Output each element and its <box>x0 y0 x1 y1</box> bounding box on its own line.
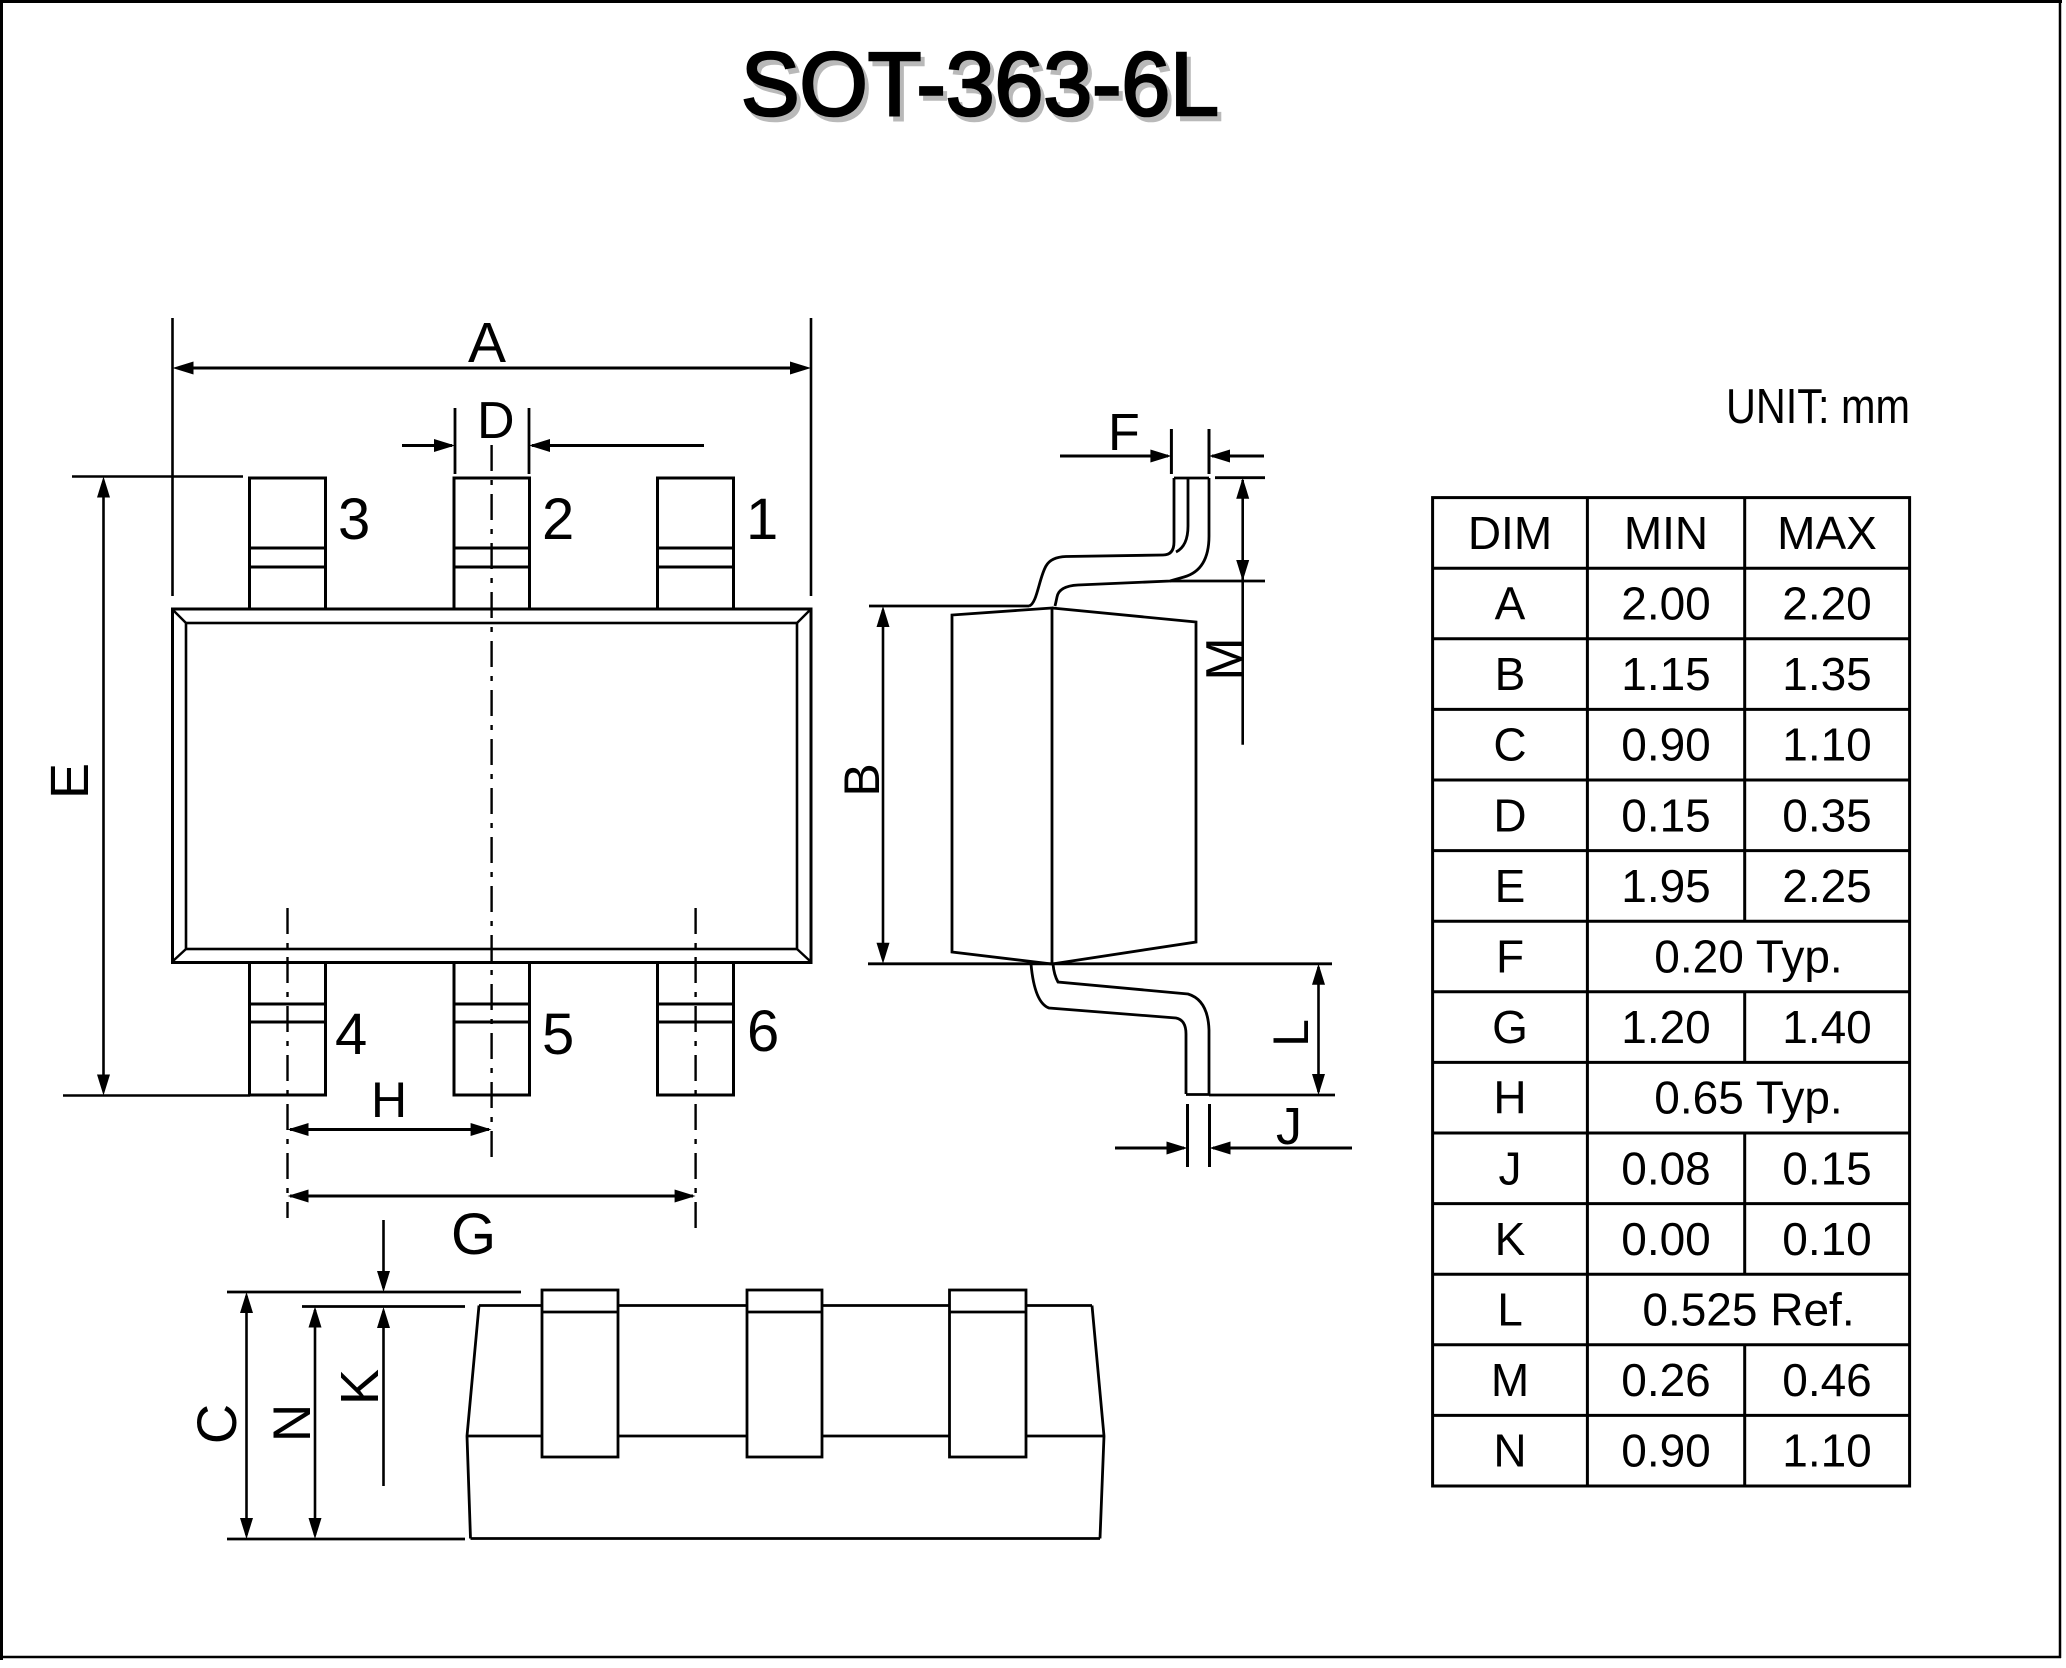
svg-text:C: C <box>185 1404 248 1444</box>
svg-text:0.15: 0.15 <box>1782 1142 1872 1194</box>
svg-text:A: A <box>468 311 506 375</box>
svg-text:2.00: 2.00 <box>1621 578 1711 630</box>
svg-text:G: G <box>451 1202 496 1267</box>
svg-text:4: 4 <box>335 1002 367 1067</box>
svg-text:1.95: 1.95 <box>1621 860 1711 912</box>
svg-text:N: N <box>263 1404 322 1442</box>
svg-text:G: G <box>1492 1001 1528 1053</box>
svg-text:6: 6 <box>747 999 779 1064</box>
svg-text:2: 2 <box>542 487 574 552</box>
svg-text:J: J <box>1276 1098 1302 1156</box>
svg-text:B: B <box>834 763 890 796</box>
svg-text:A: A <box>1495 578 1526 630</box>
svg-text:K: K <box>330 1369 390 1405</box>
svg-text:1.10: 1.10 <box>1782 1425 1872 1477</box>
svg-text:K: K <box>1495 1213 1526 1265</box>
svg-text:5: 5 <box>542 1002 574 1067</box>
svg-text:M: M <box>1196 637 1254 680</box>
svg-text:E: E <box>1495 860 1526 912</box>
svg-text:3: 3 <box>338 487 370 552</box>
svg-text:F: F <box>1108 404 1140 462</box>
svg-text:0.525 Ref.: 0.525 Ref. <box>1642 1284 1854 1336</box>
svg-text:SOT-363-6L: SOT-363-6L <box>741 35 1219 135</box>
svg-text:0.00: 0.00 <box>1621 1213 1711 1265</box>
svg-text:DIM: DIM <box>1468 507 1552 559</box>
svg-text:D: D <box>477 392 515 450</box>
svg-text:0.46: 0.46 <box>1782 1354 1872 1406</box>
svg-text:L: L <box>1263 1019 1319 1047</box>
svg-text:N: N <box>1493 1425 1526 1477</box>
svg-text:E: E <box>40 763 100 799</box>
svg-text:H: H <box>371 1072 407 1128</box>
svg-text:1.20: 1.20 <box>1621 1001 1711 1053</box>
svg-text:0.10: 0.10 <box>1782 1213 1872 1265</box>
svg-text:1.35: 1.35 <box>1782 648 1872 700</box>
svg-text:0.35: 0.35 <box>1782 789 1872 841</box>
svg-text:UNIT: mm: UNIT: mm <box>1726 380 1910 434</box>
svg-text:1.10: 1.10 <box>1782 719 1872 771</box>
svg-text:0.20 Typ.: 0.20 Typ. <box>1654 931 1842 983</box>
svg-text:0.26: 0.26 <box>1621 1354 1711 1406</box>
svg-text:2.20: 2.20 <box>1782 578 1872 630</box>
svg-text:B: B <box>1495 648 1526 700</box>
svg-text:L: L <box>1497 1284 1523 1336</box>
svg-text:J: J <box>1499 1142 1522 1194</box>
svg-text:H: H <box>1493 1072 1526 1124</box>
svg-text:F: F <box>1496 931 1524 983</box>
svg-text:0.90: 0.90 <box>1621 1425 1711 1477</box>
svg-text:0.08: 0.08 <box>1621 1142 1711 1194</box>
svg-text:2.25: 2.25 <box>1782 860 1872 912</box>
svg-text:1.15: 1.15 <box>1621 648 1711 700</box>
svg-text:0.15: 0.15 <box>1621 789 1711 841</box>
svg-text:M: M <box>1491 1354 1529 1406</box>
svg-text:1: 1 <box>746 487 778 552</box>
svg-text:0.65 Typ.: 0.65 Typ. <box>1654 1072 1842 1124</box>
svg-text:D: D <box>1493 789 1526 841</box>
svg-text:C: C <box>1493 719 1526 771</box>
svg-text:MIN: MIN <box>1624 507 1708 559</box>
svg-text:MAX: MAX <box>1777 507 1877 559</box>
svg-text:1.40: 1.40 <box>1782 1001 1872 1053</box>
svg-text:0.90: 0.90 <box>1621 719 1711 771</box>
